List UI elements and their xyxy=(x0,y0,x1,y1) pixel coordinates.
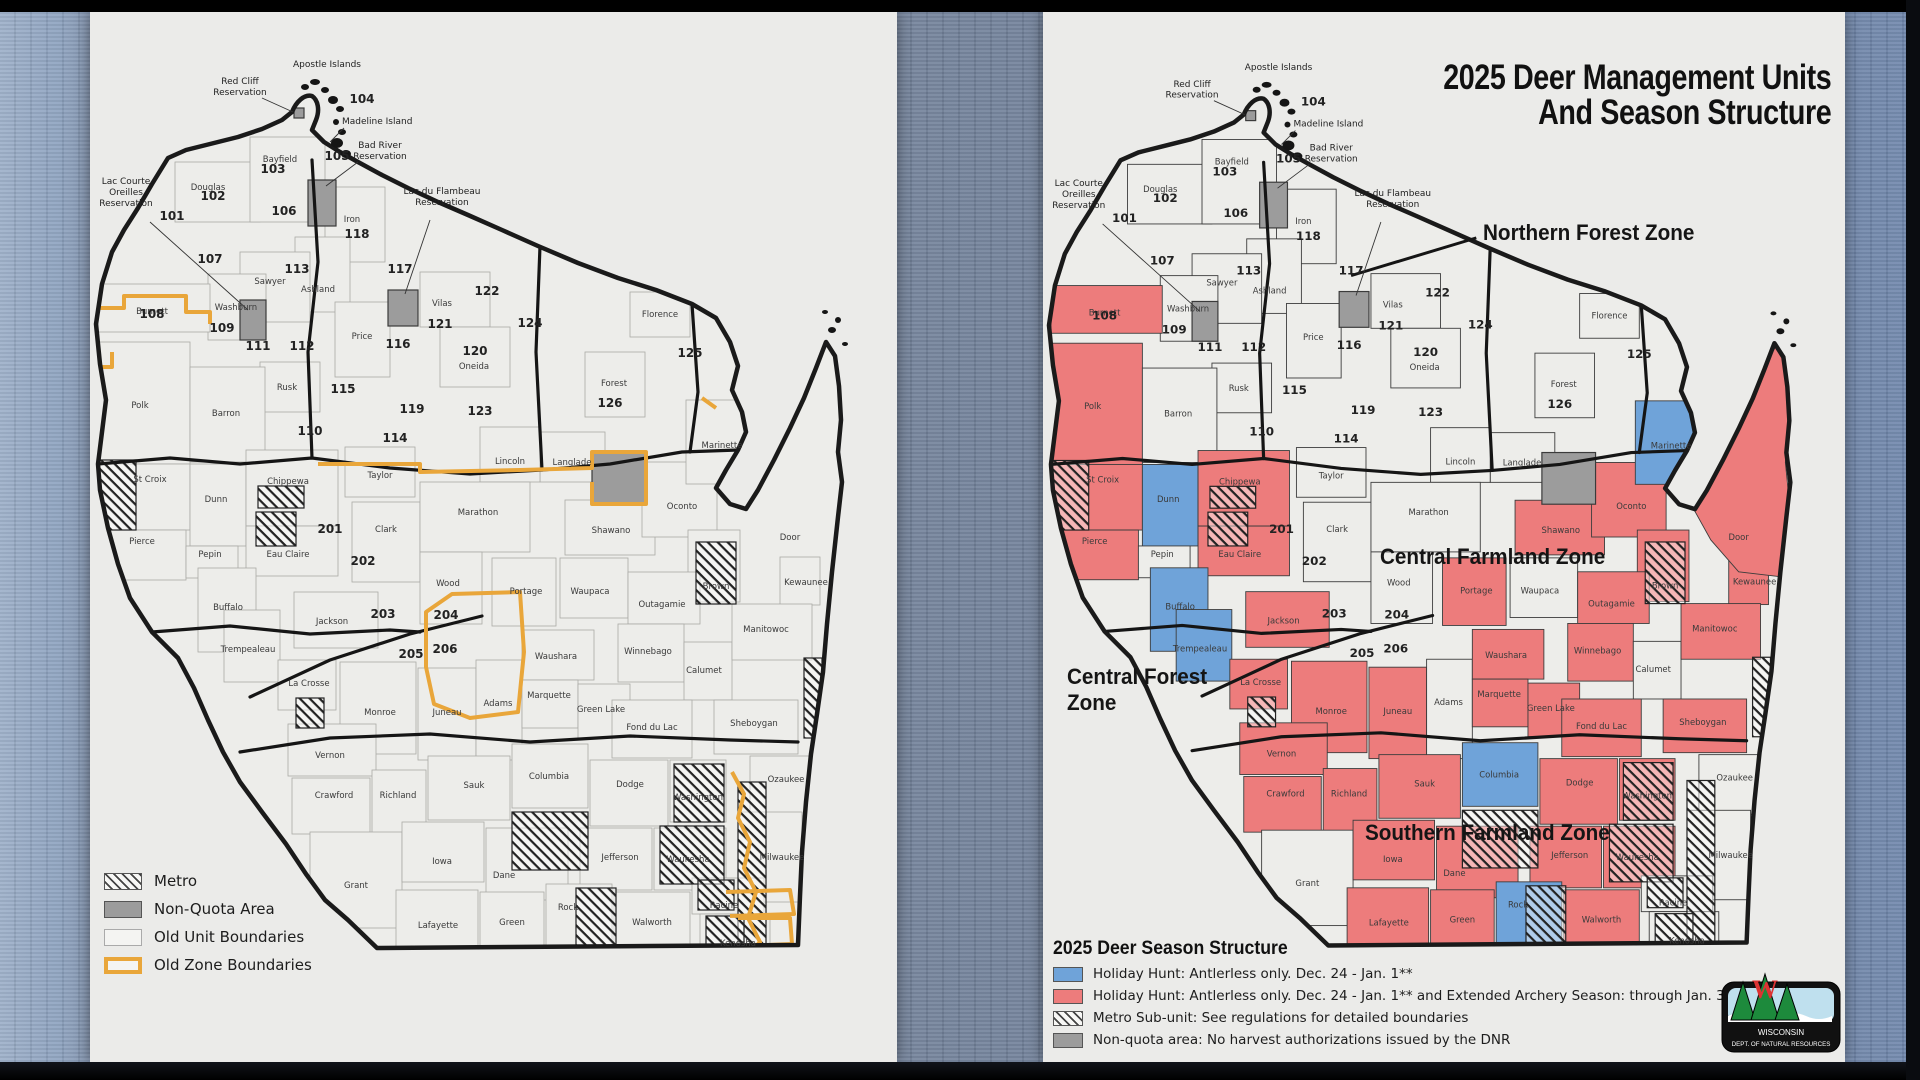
county-label: Crawford xyxy=(315,791,354,801)
unit-number: 105 xyxy=(1276,151,1301,165)
county-label: Grant xyxy=(344,881,369,891)
county-label: Milwaukee xyxy=(1709,850,1753,860)
county-label: Lafayette xyxy=(418,921,458,931)
unit-number: 108 xyxy=(1092,308,1117,322)
county-label: Brown xyxy=(1652,581,1678,591)
legend-label: Metro xyxy=(154,872,197,890)
county-label: Pepin xyxy=(1151,549,1174,559)
annotation-label: Reservation xyxy=(99,199,152,209)
unit-number: 126 xyxy=(1547,397,1572,411)
county-label: St Croix xyxy=(1086,474,1119,484)
county-label: Crawford xyxy=(1266,788,1304,798)
legend-swatch-gray xyxy=(104,901,142,918)
unit-number: 109 xyxy=(209,321,234,335)
county-label: Dane xyxy=(493,871,515,881)
unit-number: 205 xyxy=(398,647,423,661)
unit-number: 203 xyxy=(370,607,395,621)
county-label: Waushara xyxy=(1485,650,1527,660)
annotation-label: Bad River xyxy=(1310,143,1354,153)
county-label: Iron xyxy=(1295,216,1311,226)
county-label: La Crosse xyxy=(1240,677,1281,687)
legend-swatch-orange xyxy=(104,957,142,974)
county-label: Barron xyxy=(1164,409,1192,419)
unit-number: 104 xyxy=(349,92,374,106)
county-label: Juneau xyxy=(1382,706,1412,716)
county-label: Pierce xyxy=(129,537,155,547)
unit-number: 106 xyxy=(271,204,296,218)
unit-number: 111 xyxy=(1198,340,1223,354)
county-label: Langlade xyxy=(553,458,592,468)
legend-row: Non-quota area: No harvest authorization… xyxy=(1053,1030,1776,1050)
legend-row: Old Unit Boundaries xyxy=(104,926,312,948)
metro-subunit-hatch xyxy=(696,542,736,604)
county-label: Eau Claire xyxy=(266,550,309,560)
metro-subunit-hatch xyxy=(576,888,616,946)
county-label: Pierce xyxy=(1082,536,1108,546)
legend-label: Old Zone Boundaries xyxy=(154,956,312,974)
county-label: Manitowoc xyxy=(743,625,789,635)
wisconsin-dnr-logo: W WISCONSIN DEPT. OF NATURAL RESOURCES xyxy=(1721,968,1841,1054)
island-dot xyxy=(328,96,338,104)
county-label: Washington xyxy=(1622,790,1672,800)
county-dodge xyxy=(590,760,668,826)
unit-number: 118 xyxy=(344,227,369,241)
county-label: Vilas xyxy=(1383,299,1403,309)
annotation-label: Lac Courte xyxy=(1055,179,1104,189)
county-label: Chippewa xyxy=(1219,476,1261,486)
map-title-line1: 2025 Deer Management Units xyxy=(1443,60,1831,95)
left-map-panel: DouglasBayfieldIronAshlandSawyerPriceVil… xyxy=(90,12,897,1062)
county-label: Price xyxy=(1303,332,1324,342)
county-label: Trempealeau xyxy=(220,645,276,655)
county-label: Outagamie xyxy=(638,600,685,610)
unit-number: 102 xyxy=(200,189,225,203)
county-label: Milwaukee xyxy=(760,853,805,863)
metro-subunit-hatch xyxy=(1645,542,1685,604)
county-clark xyxy=(352,502,420,582)
county-label: Barron xyxy=(212,409,240,419)
county-label: Clark xyxy=(1326,524,1348,534)
legend-swatch-gray xyxy=(1053,1033,1083,1048)
county-label: Jefferson xyxy=(1550,850,1588,860)
legend-row: Holiday Hunt: Antlerless only. Dec. 24 -… xyxy=(1053,986,1776,1006)
dnr-logo-trees: W xyxy=(1731,974,1799,1020)
island-dot xyxy=(321,87,329,93)
county-label: Lincoln xyxy=(1445,456,1475,466)
metro-subunit-hatch xyxy=(1208,512,1248,546)
county-label: Shawano xyxy=(592,526,631,536)
island-dot xyxy=(1783,318,1789,324)
county-label: Marathon xyxy=(1408,507,1448,517)
annotation-label: Reservation xyxy=(1052,201,1105,211)
county-label: Iowa xyxy=(1383,854,1403,864)
county-label: Marinette xyxy=(1651,441,1692,451)
county-label: Oconto xyxy=(667,502,698,512)
unit-number: 119 xyxy=(1351,403,1376,417)
island-dot xyxy=(1770,311,1776,315)
unit-number: 110 xyxy=(1249,425,1274,439)
unit-number: 122 xyxy=(474,284,499,298)
county-label: Calumet xyxy=(1635,664,1671,674)
county-label: Green xyxy=(499,918,525,928)
county-label: Florence xyxy=(642,310,678,320)
zone-label-central-forest: Central Forest Zone xyxy=(1067,664,1207,716)
county-label: Buffalo xyxy=(213,603,243,613)
unit-number: 201 xyxy=(317,522,342,536)
county-label: Washburn xyxy=(215,303,257,313)
county-label: Wood xyxy=(1387,578,1411,588)
unit-number: 202 xyxy=(1302,554,1327,568)
unit-number: 110 xyxy=(297,424,322,438)
metro-subunit-hatch xyxy=(296,698,324,728)
legend-swatch-hatch xyxy=(1053,1011,1083,1026)
zone-label-southern-farmland: Southern Farmland Zone xyxy=(1365,820,1610,846)
unit-number: 206 xyxy=(1383,641,1408,655)
unit-number: 125 xyxy=(677,346,702,360)
unit-number: 204 xyxy=(1384,607,1409,621)
unit-number: 103 xyxy=(1212,164,1237,178)
unit-number: 112 xyxy=(289,339,314,353)
left-legend: MetroNon-Quota AreaOld Unit BoundariesOl… xyxy=(104,864,312,982)
county-label: Walworth xyxy=(1582,915,1622,925)
legend-row: Holiday Hunt: Antlerless only. Dec. 24 -… xyxy=(1053,964,1776,984)
metro-subunit-hatch xyxy=(1051,460,1089,530)
county-outagamie xyxy=(628,572,700,624)
county-label: Jefferson xyxy=(600,853,638,863)
county-dodge xyxy=(1540,759,1618,825)
screenshot-stage: DouglasBayfieldIronAshlandSawyerPriceVil… xyxy=(0,0,1920,1080)
island-dot xyxy=(828,327,836,333)
county-label: Rock xyxy=(558,903,578,913)
unit-number: 124 xyxy=(1468,317,1493,331)
season-structure-map: DouglasBayfieldIronAshlandSawyerPriceVil… xyxy=(1043,12,1845,1062)
island-dot xyxy=(333,119,339,125)
county-label: Rock xyxy=(1508,900,1528,910)
county-label: Forest xyxy=(1551,379,1578,389)
metro-subunit-hatch xyxy=(1248,697,1276,727)
unit-number: 202 xyxy=(350,554,375,568)
county-label: Ashland xyxy=(1253,286,1287,296)
county-iowa xyxy=(402,822,484,882)
zone-label-northern-forest: Northern Forest Zone xyxy=(1483,220,1694,246)
county-label: Florence xyxy=(1591,310,1627,320)
county-label: Ashland xyxy=(301,285,335,295)
metro-subunit-hatch xyxy=(256,512,296,546)
county-label: Ozaukee xyxy=(768,775,805,785)
county-label: Richland xyxy=(1331,788,1367,798)
unit-number: 116 xyxy=(1337,338,1362,352)
unit-number: 206 xyxy=(432,642,457,656)
county-label: Iowa xyxy=(432,857,452,867)
island-dot xyxy=(1262,82,1272,88)
unit-number: 120 xyxy=(462,344,487,358)
county-label: Lafayette xyxy=(1369,918,1409,928)
unit-number: 126 xyxy=(597,396,622,410)
metro-subunit-hatch xyxy=(1526,886,1566,944)
county-label: Sawyer xyxy=(254,277,286,287)
unit-number: 101 xyxy=(159,209,184,223)
county-label: Waushara xyxy=(535,652,577,662)
county-label: Polk xyxy=(131,401,148,411)
annotation-label: Reservation xyxy=(415,198,468,208)
annotation-label: Lac Courte xyxy=(102,177,151,187)
annotation-label: Apostle Islands xyxy=(1245,63,1313,73)
map-title-line2: And Season Structure xyxy=(1443,95,1831,130)
unit-number: 104 xyxy=(1301,95,1326,109)
island-dot xyxy=(1253,87,1261,93)
county-label: Shawano xyxy=(1542,525,1580,535)
county-label: Eau Claire xyxy=(1218,549,1261,559)
annotation-label: Lac du Flambeau xyxy=(1355,189,1432,199)
county-label: La Crosse xyxy=(288,679,329,689)
island-dot xyxy=(822,310,828,314)
county-label: Portage xyxy=(510,587,543,597)
unit-number: 123 xyxy=(1418,405,1443,419)
county-label: Oneida xyxy=(459,362,489,372)
county-label: Kewaunee xyxy=(1733,577,1776,587)
legend-swatch-white xyxy=(104,929,142,946)
unit-number: 204 xyxy=(433,608,458,622)
county-label: Manitowoc xyxy=(1692,623,1738,633)
unit-number: 106 xyxy=(1223,206,1248,220)
annotation-label: Madeline Island xyxy=(342,117,412,127)
county-clark xyxy=(1303,502,1371,582)
county-label: Pepin xyxy=(198,550,221,560)
county-label: Ozaukee xyxy=(1716,772,1753,782)
county-grant xyxy=(310,832,402,928)
county-label: Jackson xyxy=(315,617,348,627)
county-label: Green xyxy=(1450,915,1476,925)
unit-number: 115 xyxy=(330,382,355,396)
annotation-label: Reservation xyxy=(213,88,266,98)
unit-number: 102 xyxy=(1153,191,1178,205)
legend-swatch-hatch xyxy=(104,873,142,890)
county-label: Sheboygan xyxy=(730,719,778,729)
county-label: Juneau xyxy=(431,708,461,718)
legend-row: Metro Sub-unit: See regulations for deta… xyxy=(1053,1008,1776,1028)
county-label: Winnebago xyxy=(624,647,672,657)
county-label: Adams xyxy=(484,699,514,709)
county-crawford xyxy=(292,778,370,834)
county-label: Door xyxy=(1729,532,1750,542)
reservation-lac-du-flambeau-reservation xyxy=(388,290,418,326)
county-label: Waupaca xyxy=(571,587,610,597)
county-label: Sawyer xyxy=(1206,278,1238,288)
county-lafayette xyxy=(396,890,478,948)
island-dot xyxy=(310,79,320,85)
unit-number: 125 xyxy=(1627,347,1652,361)
county-label: Racine xyxy=(710,901,739,911)
annotation-leader-line xyxy=(1214,101,1245,115)
county-label: Brown xyxy=(703,582,730,592)
county-label: Trempealeau xyxy=(1172,643,1227,653)
annotation-label: Reservation xyxy=(1305,154,1358,164)
legend-row: Non-Quota Area xyxy=(104,898,312,920)
annotation-label: Red Cliff xyxy=(1173,80,1211,90)
metro-subunit-hatch xyxy=(98,460,136,530)
annotation-label: Reservation xyxy=(1366,200,1419,210)
annotation-label: Red Cliff xyxy=(221,77,259,87)
annotation-leader-line xyxy=(262,98,293,112)
annotation-label: Bad River xyxy=(358,141,402,151)
county-label: Fond du Lac xyxy=(626,723,678,733)
county-label: Waupaca xyxy=(1521,586,1560,596)
county-label: Waukesha xyxy=(666,855,709,865)
county-label: Marquette xyxy=(1477,689,1520,699)
island-dot xyxy=(1284,122,1290,128)
island-dot xyxy=(1280,99,1290,107)
county-label: Buffalo xyxy=(1165,602,1195,612)
metro-subunit-hatch xyxy=(1210,486,1256,508)
legend-swatch-blue xyxy=(1053,967,1083,982)
county-label: Oconto xyxy=(1616,501,1646,511)
unit-number: 114 xyxy=(1334,432,1359,446)
county-label: Green Lake xyxy=(1527,703,1575,713)
unit-number: 122 xyxy=(1425,285,1450,299)
county-label: Dunn xyxy=(1157,494,1180,504)
county-label: Polk xyxy=(1084,401,1101,411)
unit-number: 107 xyxy=(1150,254,1175,268)
unit-number: 107 xyxy=(197,252,222,266)
metro-subunit-hatch xyxy=(512,812,588,870)
county-label: Langlade xyxy=(1503,457,1542,467)
dnr-logo-text2: DEPT. OF NATURAL RESOURCES xyxy=(1732,1041,1831,1048)
legend-label: Holiday Hunt: Antlerless only. Dec. 24 -… xyxy=(1093,988,1776,1004)
county-label: Rusk xyxy=(1229,383,1249,393)
metro-subunit-hatch xyxy=(258,486,304,508)
county-label: Monroe xyxy=(1315,706,1346,716)
island-dot xyxy=(835,317,841,323)
county-label: Portage xyxy=(1460,586,1492,596)
county-label: Taylor xyxy=(1318,470,1344,480)
county-label: Richland xyxy=(380,791,417,801)
annotation-label: Reservation xyxy=(1166,91,1219,101)
county-vernon xyxy=(288,724,376,776)
annotation-label: Apostle Islands xyxy=(293,60,361,70)
unit-number: 118 xyxy=(1296,229,1321,243)
island-dot xyxy=(1790,343,1796,347)
county-label: Rusk xyxy=(277,383,297,393)
county-label: Columbia xyxy=(1479,770,1519,780)
county-label: Waukesha xyxy=(1616,852,1659,862)
unit-number: 119 xyxy=(399,402,424,416)
legend-label: Holiday Hunt: Antlerless only. Dec. 24 -… xyxy=(1093,966,1413,982)
dnr-logo-w: W xyxy=(1752,975,1778,1004)
unit-number: 109 xyxy=(1162,322,1187,336)
county-label: Grant xyxy=(1295,878,1320,888)
county-label: Sauk xyxy=(1414,778,1435,788)
island-dot xyxy=(1776,328,1784,334)
legend-row: Old Zone Boundaries xyxy=(104,954,312,976)
county-label: Chippewa xyxy=(267,477,309,487)
county-label: Columbia xyxy=(529,772,569,782)
county-label: Walworth xyxy=(632,918,672,928)
unit-number: 117 xyxy=(1339,264,1364,278)
legend-label: Non-Quota Area xyxy=(154,900,275,918)
unit-number: 121 xyxy=(1378,318,1403,332)
annotation-label: Lac du Flambeau xyxy=(403,187,480,197)
unit-number: 115 xyxy=(1282,383,1307,397)
county-label: Dunn xyxy=(205,495,228,505)
county-label: Clark xyxy=(375,525,397,535)
reservation-lac-du-flambeau-reservation xyxy=(1339,292,1369,328)
legend-label: Old Unit Boundaries xyxy=(154,928,304,946)
county-marquette xyxy=(522,680,578,728)
right-legend: 2025 Deer Season Structure Holiday Hunt:… xyxy=(1053,938,1776,1052)
island-dot xyxy=(1273,90,1281,96)
right-black-edge xyxy=(1906,0,1920,1080)
legend-row: Metro xyxy=(104,870,312,892)
unit-number: 113 xyxy=(1236,264,1261,278)
island-dot xyxy=(301,84,309,90)
county-label: Forest xyxy=(601,379,628,389)
island-dot xyxy=(842,342,848,346)
unit-number: 203 xyxy=(1322,606,1347,620)
county-label: Dodge xyxy=(1566,777,1594,787)
county-label: Adams xyxy=(1434,697,1463,707)
county-label: Racine xyxy=(1659,898,1687,908)
county-label: Oneida xyxy=(1410,362,1440,372)
unit-number: 114 xyxy=(382,431,407,445)
county-label: Calumet xyxy=(686,666,722,676)
county-label: Kenosha xyxy=(720,939,756,949)
unit-number: 123 xyxy=(467,404,492,418)
unit-number: 124 xyxy=(517,316,542,330)
county-label: Iron xyxy=(344,215,360,225)
unit-number: 103 xyxy=(260,162,285,176)
county-dunn xyxy=(190,464,246,546)
county-label: Lincoln xyxy=(495,457,525,467)
county-label: Vilas xyxy=(432,299,453,309)
county-label: Vernon xyxy=(1267,749,1297,759)
dnr-logo-text1: WISCONSIN xyxy=(1758,1028,1804,1037)
legend-swatch-red xyxy=(1053,989,1083,1004)
right-legend-title: 2025 Deer Season Structure xyxy=(1053,938,1726,960)
county-label: Washburn xyxy=(1167,303,1209,313)
county-label: Marathon xyxy=(458,508,499,518)
county-label: Taylor xyxy=(366,471,393,481)
county-label: Fond du Lac xyxy=(1576,721,1627,731)
zone-label-central-farmland: Central Farmland Zone xyxy=(1380,544,1605,570)
county-label: Marinette xyxy=(702,441,743,451)
county-label: Sauk xyxy=(464,781,485,791)
county-label: Dodge xyxy=(616,780,644,790)
county-label: Washington xyxy=(673,793,723,803)
annotation-label: Oreilles xyxy=(1062,190,1096,200)
unit-number: 112 xyxy=(1241,340,1266,354)
unit-number: 101 xyxy=(1112,211,1137,225)
island-dot xyxy=(336,106,344,112)
annotation-label: Oreilles xyxy=(109,188,143,198)
county-label: Vernon xyxy=(315,751,345,761)
unit-number: 121 xyxy=(427,317,452,331)
county-label: Monroe xyxy=(364,708,396,718)
county-label: Winnebago xyxy=(1574,645,1621,655)
annotation-label: Reservation xyxy=(353,152,406,162)
county-label: Dane xyxy=(1443,868,1465,878)
island-dot xyxy=(1287,109,1295,115)
county-label: Kewaunee xyxy=(784,578,828,588)
right-map-panel: DouglasBayfieldIronAshlandSawyerPriceVil… xyxy=(1043,12,1845,1062)
top-black-bar xyxy=(0,0,1920,12)
county-dunn xyxy=(1142,464,1198,545)
bottom-black-bar xyxy=(0,1062,1920,1080)
county-label: Sheboygan xyxy=(1679,717,1726,727)
county-label: Jackson xyxy=(1266,615,1299,625)
unit-number: 201 xyxy=(1269,522,1294,536)
unit-number: 111 xyxy=(245,339,270,353)
unit-number: 116 xyxy=(385,337,410,351)
